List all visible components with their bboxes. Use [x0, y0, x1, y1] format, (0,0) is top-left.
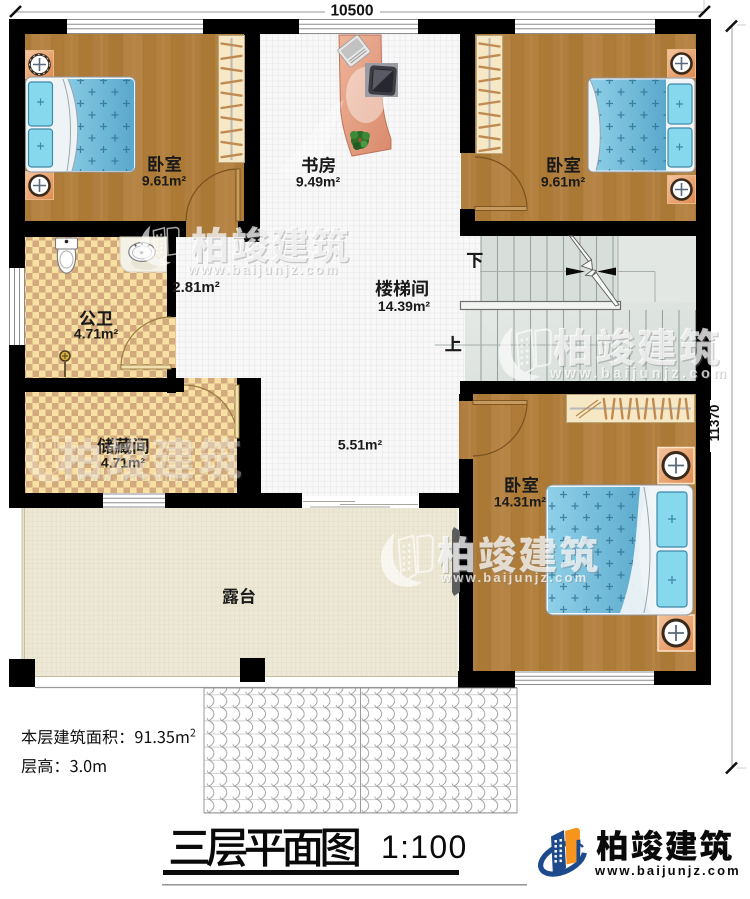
- svg-text:9.61m²: 9.61m²: [541, 174, 586, 190]
- svg-text:www.baijunjz.com: www.baijunjz.com: [549, 366, 730, 382]
- svg-text:9.61m²: 9.61m²: [142, 173, 187, 189]
- svg-text:4.71m²: 4.71m²: [74, 326, 119, 342]
- svg-text:www.baijunjz.com: www.baijunjz.com: [76, 470, 232, 484]
- svg-text:2.81m²: 2.81m²: [172, 279, 220, 296]
- svg-text:www.baijunjz.com: www.baijunjz.com: [440, 570, 588, 585]
- svg-text:5.51m²: 5.51m²: [338, 437, 383, 453]
- svg-text:11370: 11370: [707, 405, 722, 442]
- svg-text:10500: 10500: [330, 3, 373, 20]
- svg-text:14.39m²: 14.39m²: [378, 298, 430, 314]
- svg-text:www.baijunjz.com: www.baijunjz.com: [594, 863, 741, 878]
- svg-text:14.31m²: 14.31m²: [494, 494, 546, 510]
- svg-text:9.49m²: 9.49m²: [296, 174, 341, 190]
- svg-text:1:100: 1:100: [381, 829, 468, 865]
- svg-text:www.baijunjz.com: www.baijunjz.com: [187, 262, 340, 277]
